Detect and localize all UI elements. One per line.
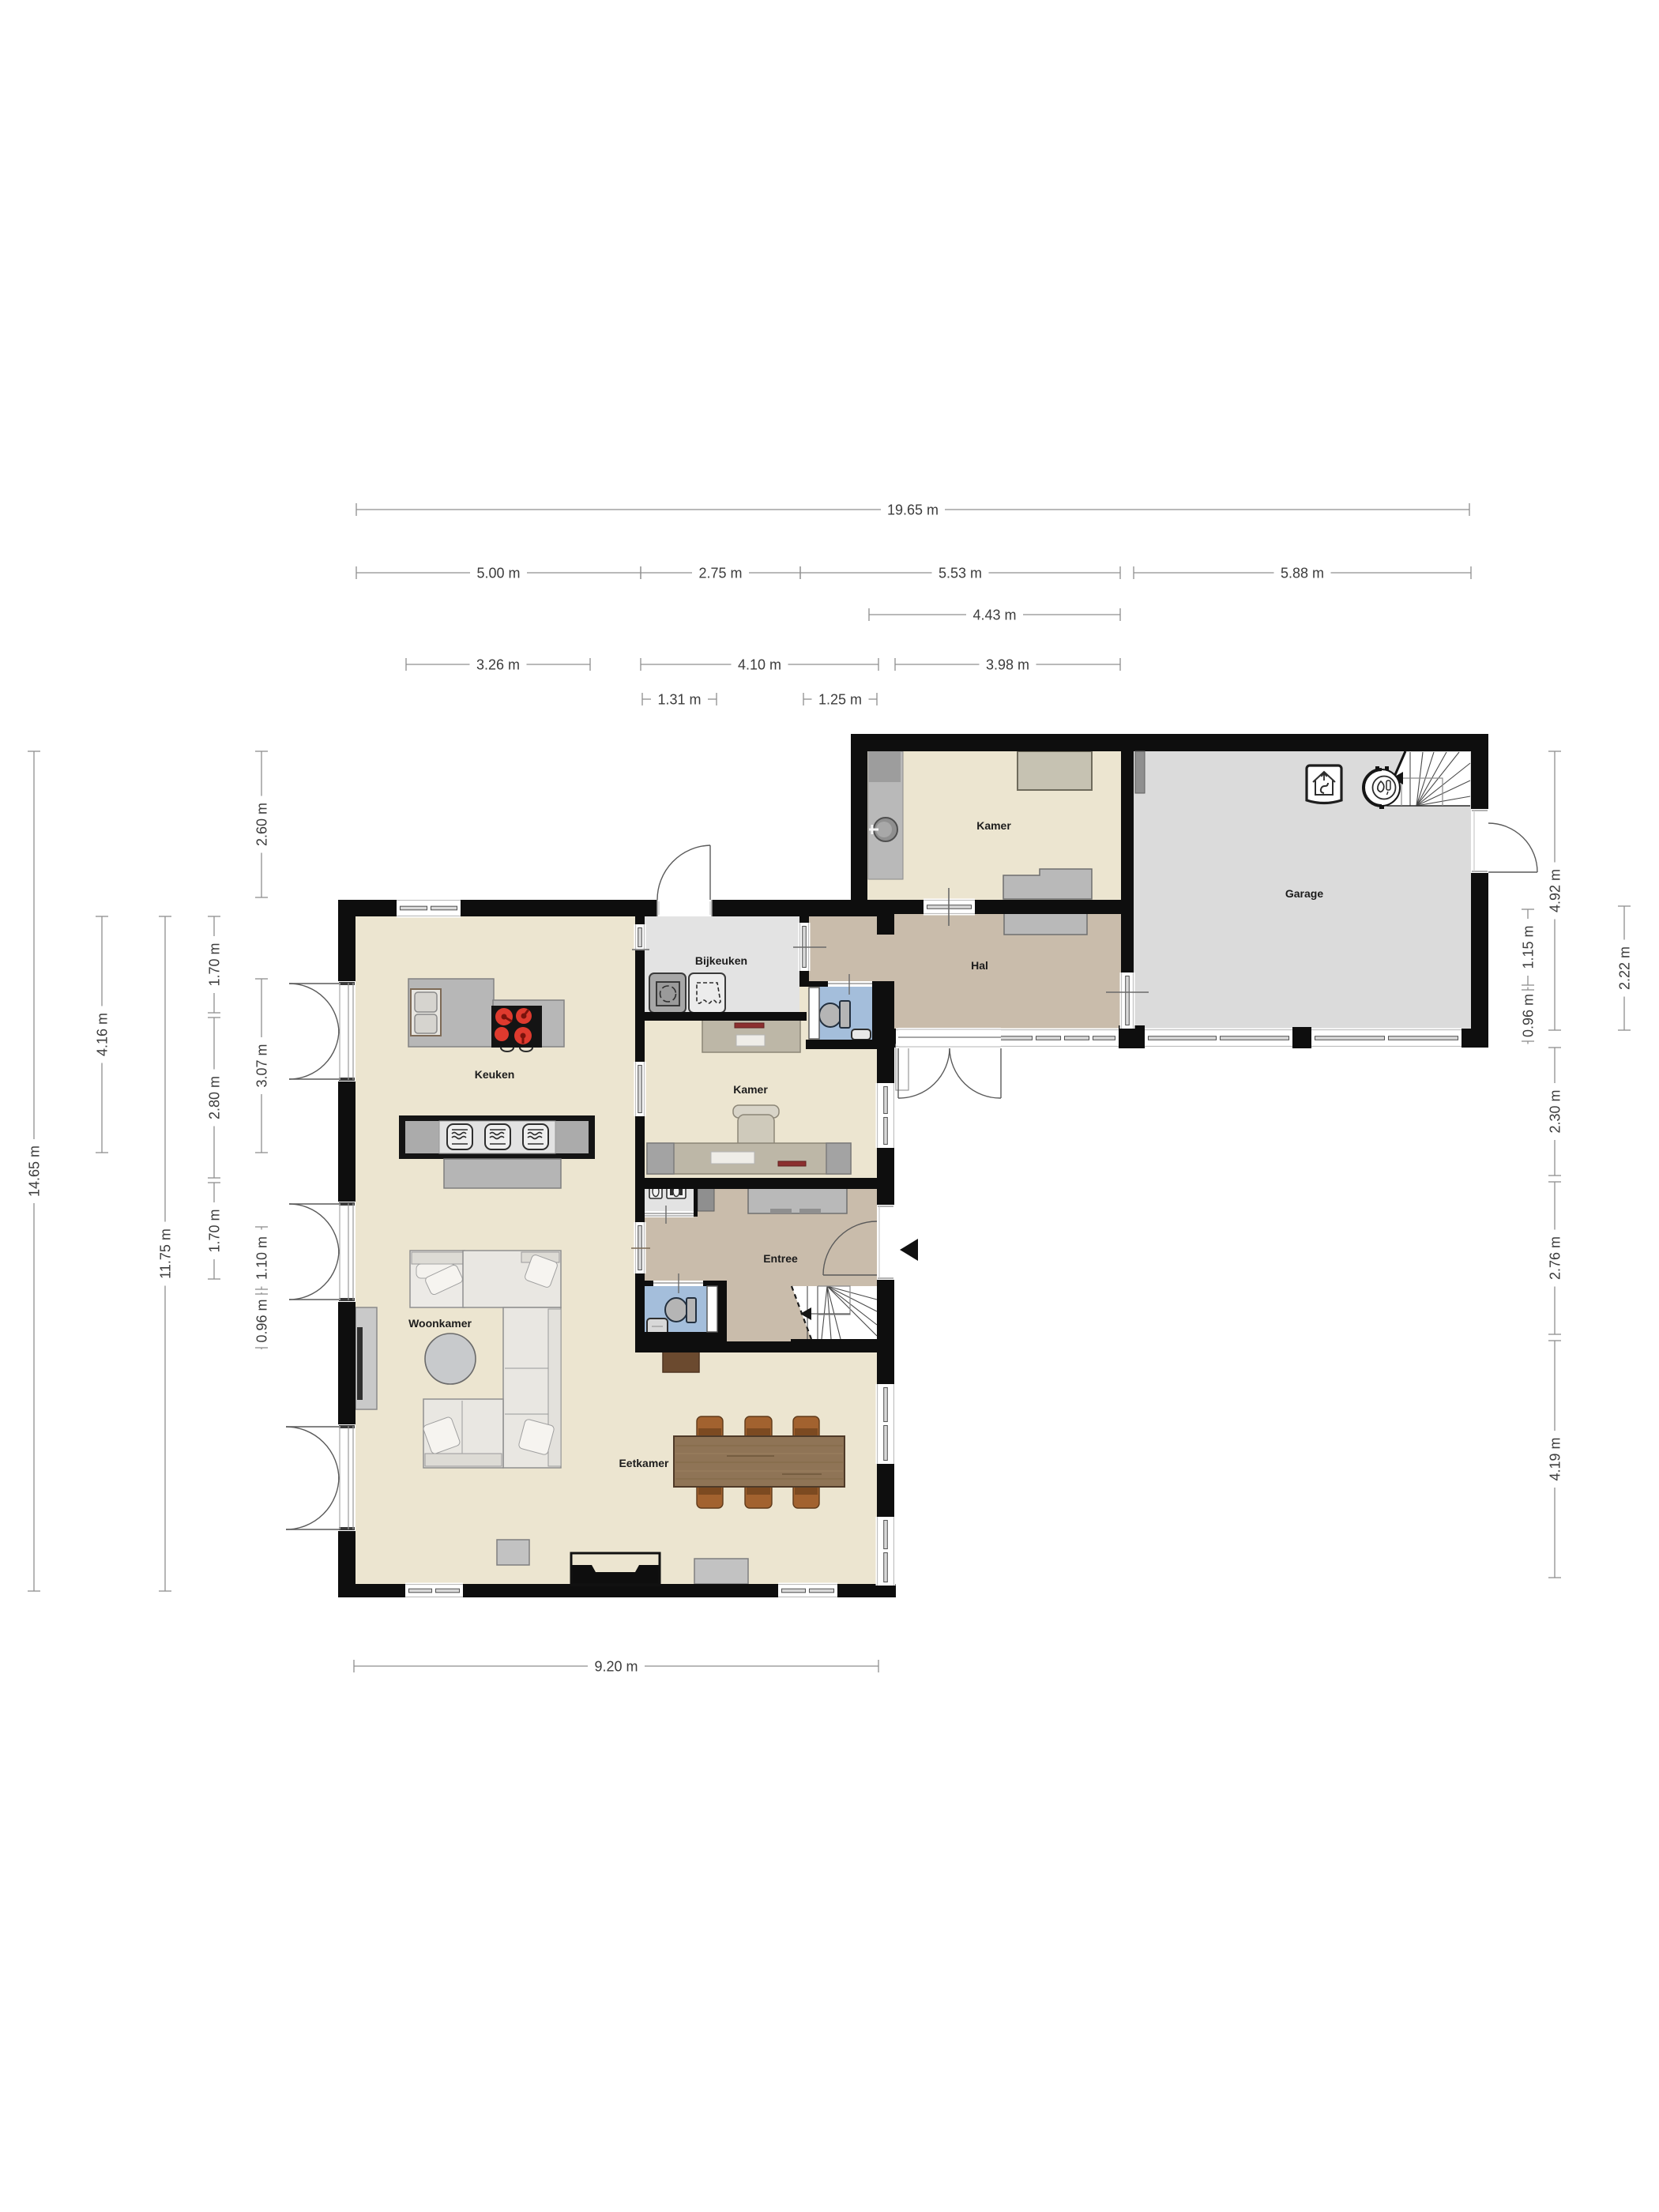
svg-text:Bijkeuken: Bijkeuken: [695, 954, 747, 967]
svg-text:5.00 m: 5.00 m: [476, 566, 520, 581]
svg-text:Woonkamer: Woonkamer: [408, 1317, 472, 1330]
svg-text:2.30 m: 2.30 m: [1548, 1089, 1563, 1133]
svg-text:14.65 m: 14.65 m: [27, 1145, 43, 1197]
svg-text:0.96 m: 0.96 m: [1521, 994, 1537, 1037]
svg-text:Keuken: Keuken: [475, 1068, 515, 1081]
svg-text:1.15 m: 1.15 m: [1521, 925, 1537, 969]
svg-text:4.92 m: 4.92 m: [1548, 869, 1563, 912]
svg-text:1.70 m: 1.70 m: [207, 942, 223, 986]
svg-text:Eetkamer: Eetkamer: [619, 1457, 669, 1469]
svg-text:5.53 m: 5.53 m: [939, 566, 982, 581]
svg-text:9.20 m: 9.20 m: [594, 1659, 638, 1675]
svg-text:4.19 m: 4.19 m: [1548, 1437, 1563, 1480]
svg-text:3.98 m: 3.98 m: [986, 657, 1029, 673]
svg-text:2.60 m: 2.60 m: [254, 803, 270, 846]
svg-text:1.10 m: 1.10 m: [254, 1236, 270, 1280]
svg-text:11.75 m: 11.75 m: [158, 1228, 174, 1279]
svg-text:Kamer: Kamer: [976, 819, 1011, 832]
svg-text:Entree: Entree: [763, 1252, 798, 1265]
svg-text:19.65 m: 19.65 m: [887, 502, 939, 518]
svg-text:2.75 m: 2.75 m: [698, 566, 742, 581]
svg-text:1.70 m: 1.70 m: [207, 1209, 223, 1252]
svg-text:3.26 m: 3.26 m: [476, 657, 520, 673]
svg-text:2.22 m: 2.22 m: [1617, 946, 1633, 990]
svg-text:1.25 m: 1.25 m: [818, 692, 862, 708]
svg-text:Hal: Hal: [971, 959, 988, 972]
svg-text:4.43 m: 4.43 m: [972, 608, 1016, 623]
svg-text:2.80 m: 2.80 m: [207, 1076, 223, 1119]
svg-text:5.88 m: 5.88 m: [1281, 566, 1324, 581]
svg-text:1.31 m: 1.31 m: [657, 692, 701, 708]
svg-text:0.96 m: 0.96 m: [254, 1299, 270, 1342]
svg-text:Garage: Garage: [1285, 887, 1323, 900]
svg-text:2.76 m: 2.76 m: [1548, 1236, 1563, 1280]
svg-text:4.16 m: 4.16 m: [95, 1013, 111, 1056]
svg-text:3.07 m: 3.07 m: [254, 1044, 270, 1087]
svg-text:Kamer: Kamer: [733, 1083, 768, 1096]
svg-text:4.10 m: 4.10 m: [738, 657, 781, 673]
